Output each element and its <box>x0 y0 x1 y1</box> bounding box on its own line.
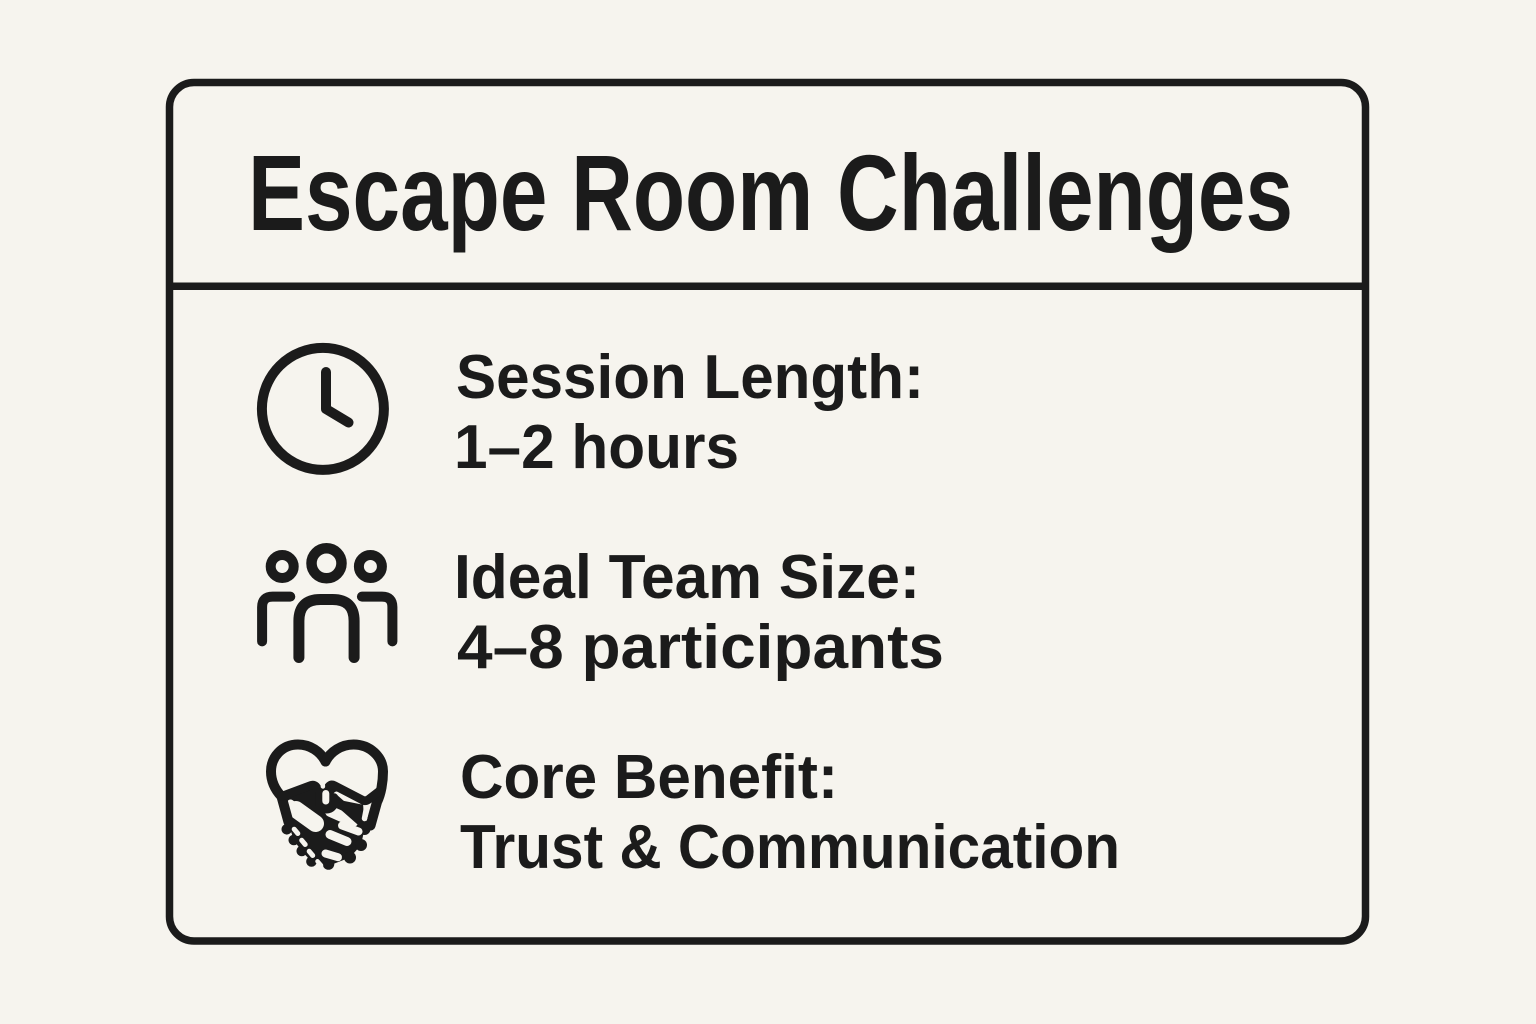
svg-text:Session Length:: Session Length: <box>456 343 924 412</box>
svg-text:Trust & Communication: Trust & Communication <box>460 813 1120 882</box>
svg-text:Ideal Team Size:: Ideal Team Size: <box>454 543 920 612</box>
svg-text:Escape Room Challenges: Escape Room Challenges <box>248 132 1293 253</box>
svg-text:4–8 participants: 4–8 participants <box>457 613 944 682</box>
svg-text:Core Benefit:: Core Benefit: <box>460 743 838 812</box>
svg-text:1–2 hours: 1–2 hours <box>454 413 739 482</box>
